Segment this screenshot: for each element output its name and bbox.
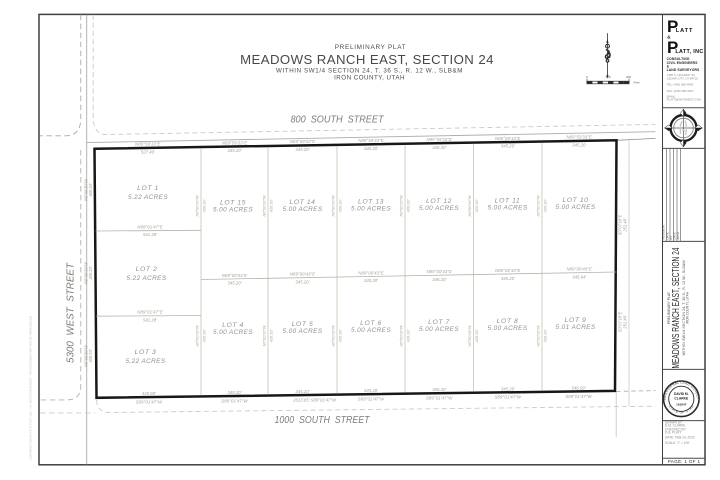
svg-text:345.20': 345.20' — [501, 386, 515, 391]
svg-text:161847: 161847 — [676, 403, 687, 407]
svg-text:345.20': 345.20' — [296, 280, 310, 285]
svg-text:345.20': 345.20' — [501, 144, 515, 149]
svg-text:420.33': 420.33' — [543, 199, 548, 212]
svg-text:5.00 ACRES: 5.00 ACRES — [419, 326, 459, 333]
svg-text:LOT 11: LOT 11 — [495, 198, 520, 205]
svg-text:345.20': 345.20' — [432, 277, 446, 282]
svg-text:345.20': 345.20' — [432, 387, 446, 392]
svg-text:345.20': 345.20' — [364, 278, 378, 283]
svg-text:LOT 4: LOT 4 — [222, 322, 244, 329]
svg-text:345.20': 345.20' — [432, 145, 446, 150]
svg-text:N0°00'16"W: N0°00'16"W — [467, 195, 472, 216]
svg-text:420.33': 420.33' — [406, 329, 411, 342]
svg-text:CLARKE: CLARKE — [674, 397, 689, 401]
svg-text:100: 100 — [605, 75, 610, 79]
svg-text:TEL: (435) 586-4435: TEL: (435) 586-4435 — [667, 83, 694, 87]
svg-text:FAX: (435) 586-4497: FAX: (435) 586-4497 — [667, 89, 694, 93]
svg-text:S89°01'47"W: S89°01'47"W — [136, 400, 163, 405]
svg-text:N0°00'16"W: N0°00'16"W — [330, 195, 335, 216]
svg-text:N89°01'47"E: N89°01'47"E — [137, 310, 163, 315]
svg-text:N89°59'33"E: N89°59'33"E — [135, 142, 161, 147]
svg-text:420.33': 420.33' — [338, 329, 343, 342]
svg-text:5.00 ACRES: 5.00 ACRES — [351, 206, 391, 213]
svg-text:LOT 14: LOT 14 — [290, 199, 316, 206]
svg-text:IRON COUNTY, UTAH: IRON COUNTY, UTAH — [686, 291, 690, 324]
svg-text:345.20': 345.20' — [228, 281, 242, 286]
svg-text:LOT 9: LOT 9 — [565, 317, 587, 324]
svg-text:LOT 1: LOT 1 — [137, 185, 159, 192]
svg-text:5.00 ACRES: 5.00 ACRES — [283, 206, 323, 213]
svg-text:800 SOUTH STREET: 800 SOUTH STREET — [291, 114, 385, 125]
svg-text:N89°00'43"E: N89°00'43"E — [495, 268, 521, 273]
svg-text:PAGE: 1 OF 1: PAGE: 1 OF 1 — [668, 459, 701, 464]
svg-text:5.22 ACRES: 5.22 ACRES — [128, 194, 168, 201]
svg-text:345.20': 345.20' — [228, 390, 242, 395]
svg-text:N89°59'33"E: N89°59'33"E — [426, 137, 452, 142]
svg-text:1000 SOUTH STREET: 1000 SOUTH STREET — [275, 415, 371, 426]
svg-text:546.09': 546.09' — [572, 385, 586, 390]
svg-text:420.33': 420.33' — [543, 329, 548, 342]
svg-text:S89°01'47"W: S89°01'47"W — [221, 398, 248, 403]
svg-text:N89°59'33"E: N89°59'33"E — [566, 135, 592, 140]
svg-text:N89°00'43"E: N89°00'43"E — [222, 273, 248, 278]
svg-text:PLATT@INFOWEST.COM: PLATT@INFOWEST.COM — [667, 98, 702, 102]
svg-text:345.20': 345.20' — [228, 148, 242, 153]
svg-text:D.B. PLATT: D.B. PLATT — [665, 430, 682, 434]
svg-text:S89°01'47"W: S89°01'47"W — [565, 394, 592, 399]
svg-text:PRELIMINARY PLAT: PRELIMINARY PLAT — [335, 44, 407, 51]
svg-text:LOT 2: LOT 2 — [136, 266, 158, 273]
svg-text:345.20': 345.20' — [296, 389, 310, 394]
svg-text:400.33': 400.33' — [88, 266, 93, 280]
svg-text:SCALE: 1" = 100': SCALE: 1" = 100' — [665, 441, 690, 445]
svg-text:N89°00'43"E: N89°00'43"E — [566, 267, 592, 272]
svg-text:N0°00'16"W: N0°00'16"W — [194, 325, 199, 346]
svg-text:MEADOWS RANCH EAST, SECTION 24: MEADOWS RANCH EAST, SECTION 24 — [240, 52, 494, 67]
svg-text:5.22 ACRES: 5.22 ACRES — [127, 275, 167, 282]
svg-text:5.00 ACRES: 5.00 ACRES — [556, 204, 596, 211]
svg-text:5.00 ACRES: 5.00 ACRES — [488, 205, 528, 212]
svg-text:345.20': 345.20' — [364, 146, 378, 151]
svg-text:251.48': 251.48' — [623, 218, 628, 233]
svg-text:541.28': 541.28' — [143, 317, 157, 322]
svg-text:420.33': 420.33' — [269, 199, 274, 212]
svg-text:345.64': 345.64' — [572, 275, 586, 280]
svg-text:420.33': 420.33' — [474, 199, 479, 212]
svg-text:400.33': 400.33' — [88, 349, 93, 363]
svg-text:IRON COUNTY, UTAH: IRON COUNTY, UTAH — [334, 75, 405, 82]
svg-text:N0°00'16"W: N0°00'16"W — [330, 325, 335, 346]
svg-text:LOT 5: LOT 5 — [292, 321, 314, 328]
svg-text:N89°59'33"E: N89°59'33"E — [290, 139, 316, 144]
svg-text:5.00 ACRES: 5.00 ACRES — [419, 205, 459, 212]
svg-text:5300 WEST STREET: 5300 WEST STREET — [66, 262, 77, 363]
svg-text:N89°00'43"E: N89°00'43"E — [290, 272, 316, 277]
svg-text:LOT 10: LOT 10 — [563, 197, 589, 204]
svg-text:N0°00'16"W: N0°00'16"W — [535, 325, 540, 346]
svg-text:N0°00'16"W: N0°00'16"W — [398, 325, 403, 346]
svg-text:5.01 ACRES: 5.01 ACRES — [556, 324, 596, 331]
svg-text:N0°00'16"W: N0°00'16"W — [261, 195, 266, 216]
svg-text:LOT 6: LOT 6 — [360, 320, 382, 327]
svg-text:420.33': 420.33' — [406, 199, 411, 212]
svg-text:LOT 12: LOT 12 — [426, 198, 452, 205]
svg-text:CEDAR CITY, UT 84720: CEDAR CITY, UT 84720 — [667, 76, 699, 80]
svg-text:5.00 ACRES: 5.00 ACRES — [213, 207, 253, 214]
svg-text:400.33': 400.33' — [88, 183, 93, 197]
svg-text:420.33': 420.33' — [338, 199, 343, 212]
svg-text:420.33': 420.33' — [202, 199, 207, 212]
svg-text:5.00 ACRES: 5.00 ACRES — [213, 329, 253, 336]
svg-text:251.48': 251.48' — [623, 315, 628, 330]
svg-text:420.33': 420.33' — [202, 329, 207, 342]
svg-text:CIVIL ENGINEERS: CIVIL ENGINEERS — [667, 61, 699, 65]
svg-text:N0°00'16"W: N0°00'16"W — [467, 325, 472, 346]
svg-text:LAND SURVEYORS: LAND SURVEYORS — [667, 68, 700, 72]
svg-text:N89°59'33"E: N89°59'33"E — [495, 136, 521, 141]
svg-text:345.20': 345.20' — [572, 143, 586, 148]
svg-text:5.22 ACRES: 5.22 ACRES — [126, 358, 166, 365]
svg-text:N89°59'33"E: N89°59'33"E — [358, 138, 384, 143]
svg-text:N0°00'16"W: N0°00'16"W — [194, 195, 199, 216]
svg-text:N89°01'47"E: N89°01'47"E — [137, 224, 163, 229]
svg-text:MEADOWS RANCH EAST, SECTION 24: MEADOWS RANCH EAST, SECTION 24 — [671, 247, 682, 368]
svg-text:N0°00'16"W: N0°00'16"W — [261, 325, 266, 346]
svg-text:DATE: FEB 14, 2023: DATE: FEB 14, 2023 — [665, 435, 695, 439]
svg-text:S89°01'47"W: S89°01'47"W — [358, 397, 385, 402]
svg-text:345.20': 345.20' — [296, 147, 310, 152]
svg-text:420.33': 420.33' — [474, 329, 479, 342]
svg-text:LATT: LATT — [676, 28, 693, 34]
svg-text:Feet: Feet — [634, 81, 640, 85]
svg-text:200: 200 — [626, 75, 631, 79]
svg-text:N0°00'16"W: N0°00'16"W — [398, 195, 403, 216]
svg-text:WITHIN SW1/4 SECTION 24, T. 36: WITHIN SW1/4 SECTION 24, T. 36 S., R. 12… — [276, 67, 463, 74]
svg-text:5.00 ACRES: 5.00 ACRES — [488, 325, 528, 332]
svg-text:LATT, INC: LATT, INC — [675, 49, 703, 55]
svg-text:APPR.: APPR. — [676, 231, 680, 240]
svg-text:N89°00'43"E: N89°00'43"E — [426, 269, 452, 274]
svg-text:DAVID M.: DAVID M. — [674, 392, 689, 396]
svg-text:5.00 ACRES: 5.00 ACRES — [283, 328, 323, 335]
svg-text:LOT 8: LOT 8 — [497, 318, 519, 325]
svg-text:345.20': 345.20' — [364, 388, 378, 393]
svg-text:N89°00'43"E: N89°00'43"E — [358, 270, 384, 275]
svg-text:420.33': 420.33' — [269, 329, 274, 342]
svg-text:LOT 13: LOT 13 — [358, 199, 384, 206]
svg-text:420.98': 420.98' — [142, 391, 156, 396]
svg-text:LOT 15: LOT 15 — [220, 200, 246, 207]
svg-text:5.00 ACRES: 5.00 ACRES — [351, 327, 391, 334]
svg-text:2613.65' S89°01'47"W: 2613.65' S89°01'47"W — [292, 398, 337, 403]
svg-text:N0°00'16"W: N0°00'16"W — [535, 195, 540, 216]
svg-text:527.40': 527.40' — [141, 150, 155, 155]
svg-text:LOT 3: LOT 3 — [135, 349, 157, 356]
svg-text:LOT 7: LOT 7 — [428, 319, 450, 326]
svg-text:N89°59'33"E: N89°59'33"E — [222, 140, 248, 145]
svg-text:COPYRIGHT 2023 PLATT & PLATT,: COPYRIGHT 2023 PLATT & PLATT, INC. ALL R… — [29, 316, 33, 460]
svg-text:S89°01'47"W: S89°01'47"W — [495, 395, 522, 400]
svg-text:541.28': 541.28' — [143, 232, 157, 237]
svg-text:S89°01'47"W: S89°01'47"W — [426, 396, 453, 401]
svg-text:345.20': 345.20' — [501, 276, 515, 281]
